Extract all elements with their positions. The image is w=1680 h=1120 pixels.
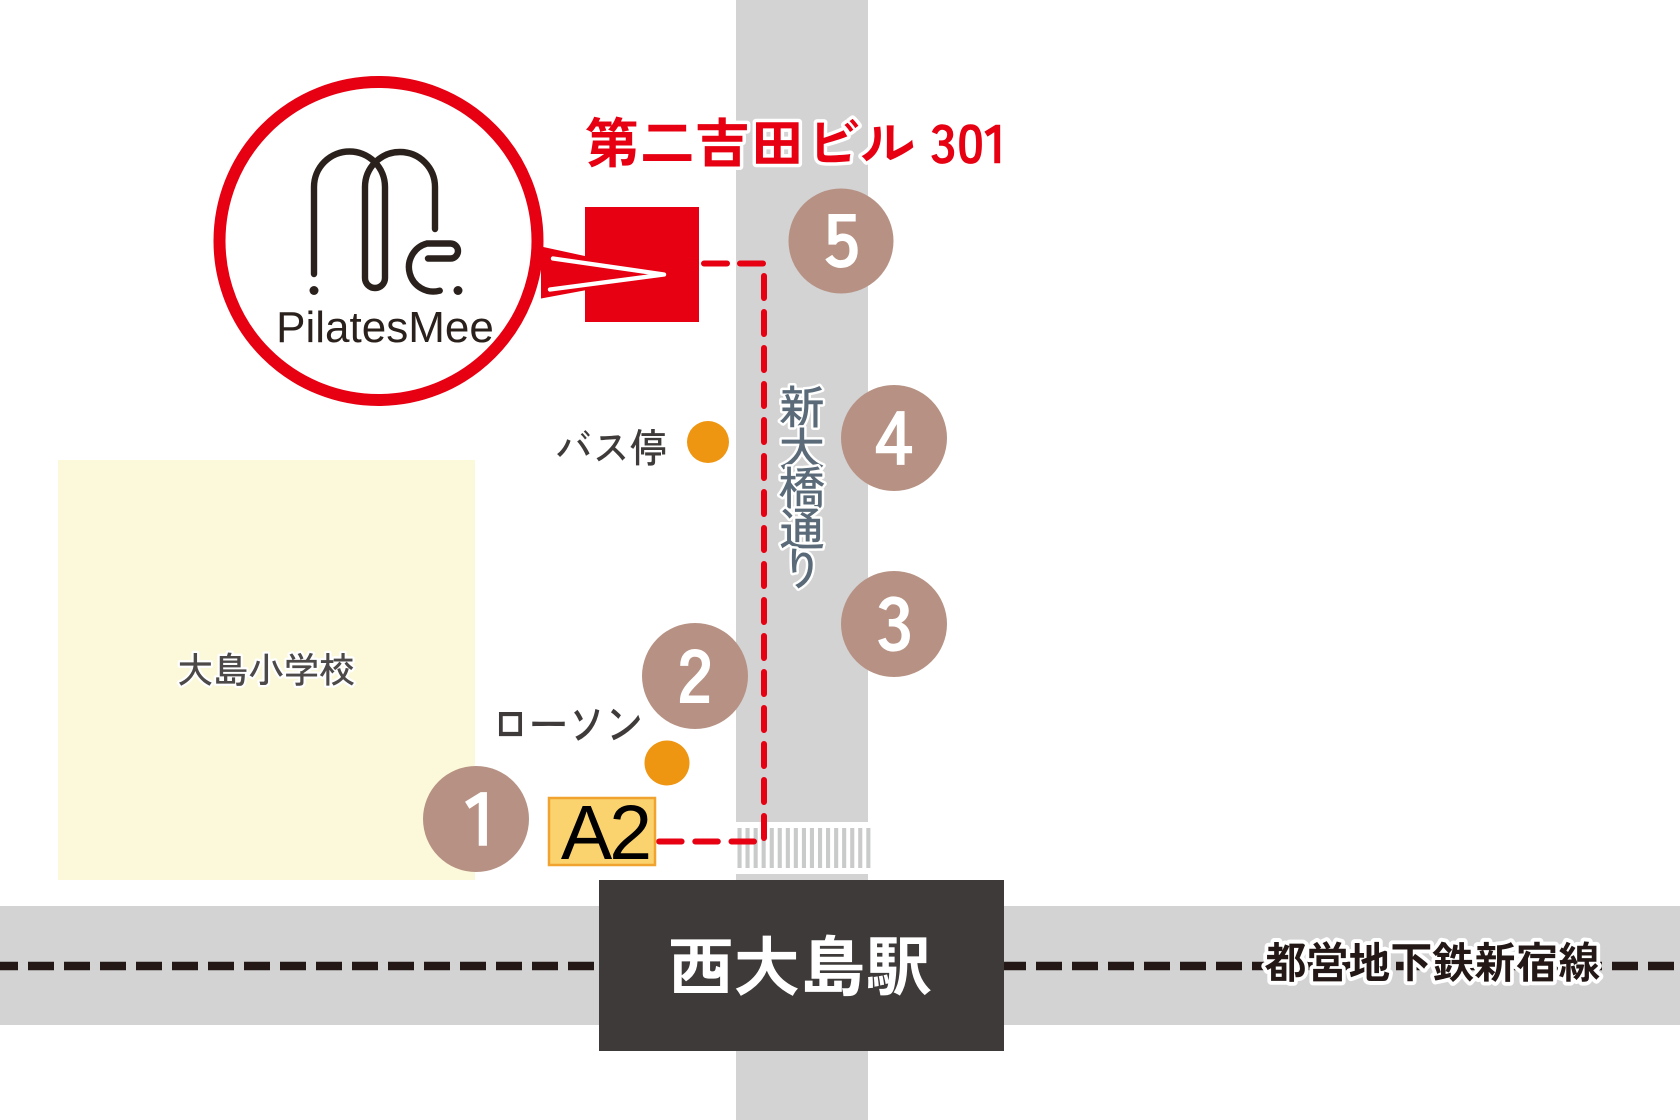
- svg-text:PilatesMee: PilatesMee: [276, 303, 494, 352]
- svg-text:A2: A2: [561, 790, 649, 876]
